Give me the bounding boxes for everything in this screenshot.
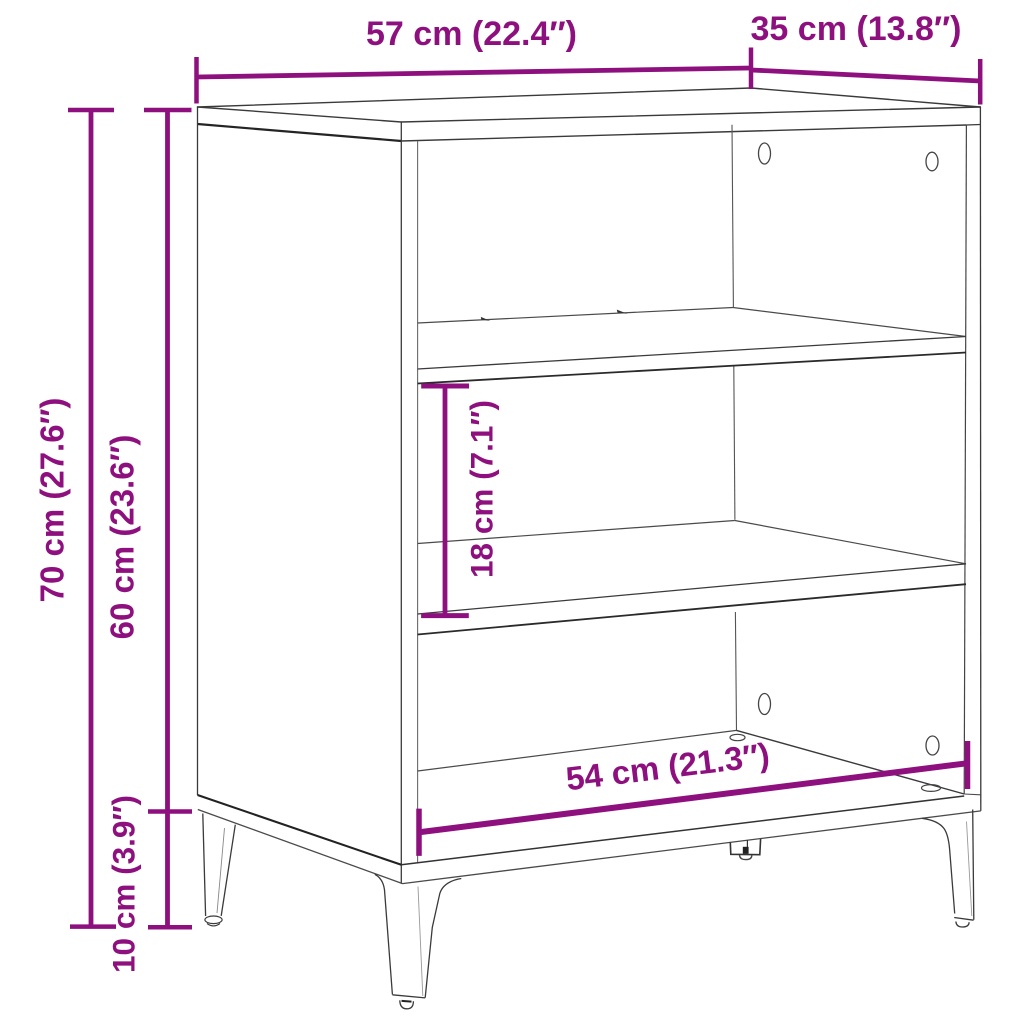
svg-text:60 cm (23.6″): 60 cm (23.6″) bbox=[104, 435, 141, 640]
svg-text:10 cm (3.9″): 10 cm (3.9″) bbox=[106, 795, 142, 973]
svg-text:35 cm (13.8″): 35 cm (13.8″) bbox=[751, 10, 962, 48]
svg-text:70 cm (27.6″): 70 cm (27.6″) bbox=[34, 398, 71, 603]
svg-text:18 cm (7.1″): 18 cm (7.1″) bbox=[464, 400, 500, 578]
svg-text:57 cm (22.4″): 57 cm (22.4″) bbox=[366, 15, 577, 53]
